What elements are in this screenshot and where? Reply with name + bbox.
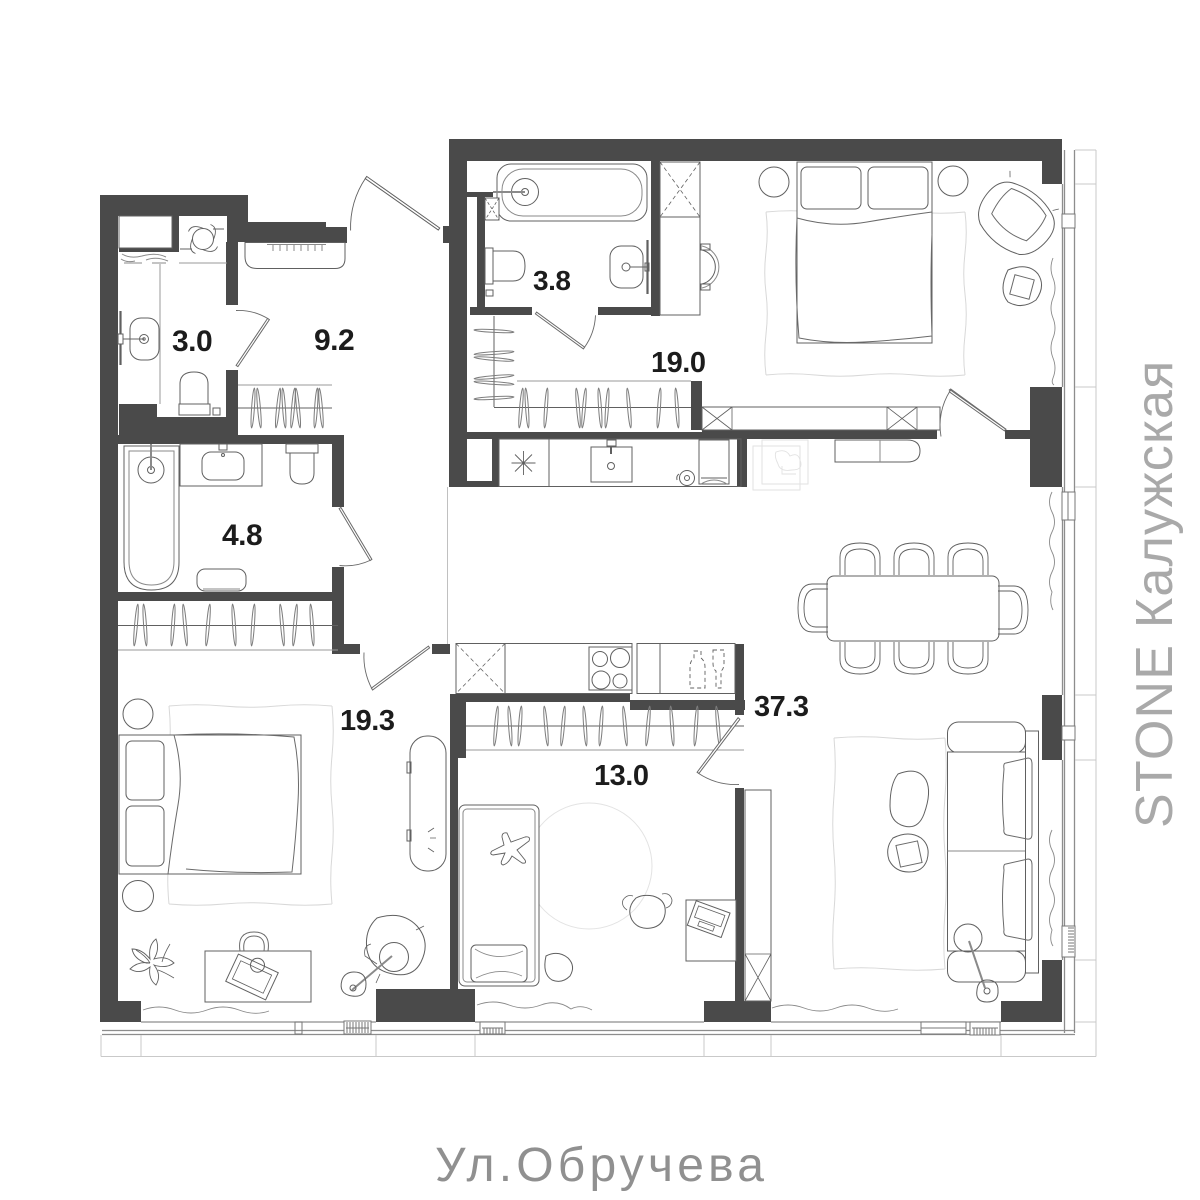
svg-text:3.0: 3.0 bbox=[172, 325, 212, 358]
svg-text:Ул.Обручева: Ул.Обручева bbox=[435, 1139, 768, 1192]
svg-text:3.8: 3.8 bbox=[533, 265, 570, 296]
svg-text:13.0: 13.0 bbox=[594, 760, 648, 792]
svg-text:9.2: 9.2 bbox=[314, 324, 354, 357]
svg-text:37.3: 37.3 bbox=[754, 691, 809, 723]
svg-text:STONE Калужская: STONE Калужская bbox=[1126, 359, 1184, 828]
svg-text:19.3: 19.3 bbox=[340, 705, 395, 737]
svg-text:4.8: 4.8 bbox=[222, 519, 262, 552]
svg-text:19.0: 19.0 bbox=[651, 347, 705, 379]
